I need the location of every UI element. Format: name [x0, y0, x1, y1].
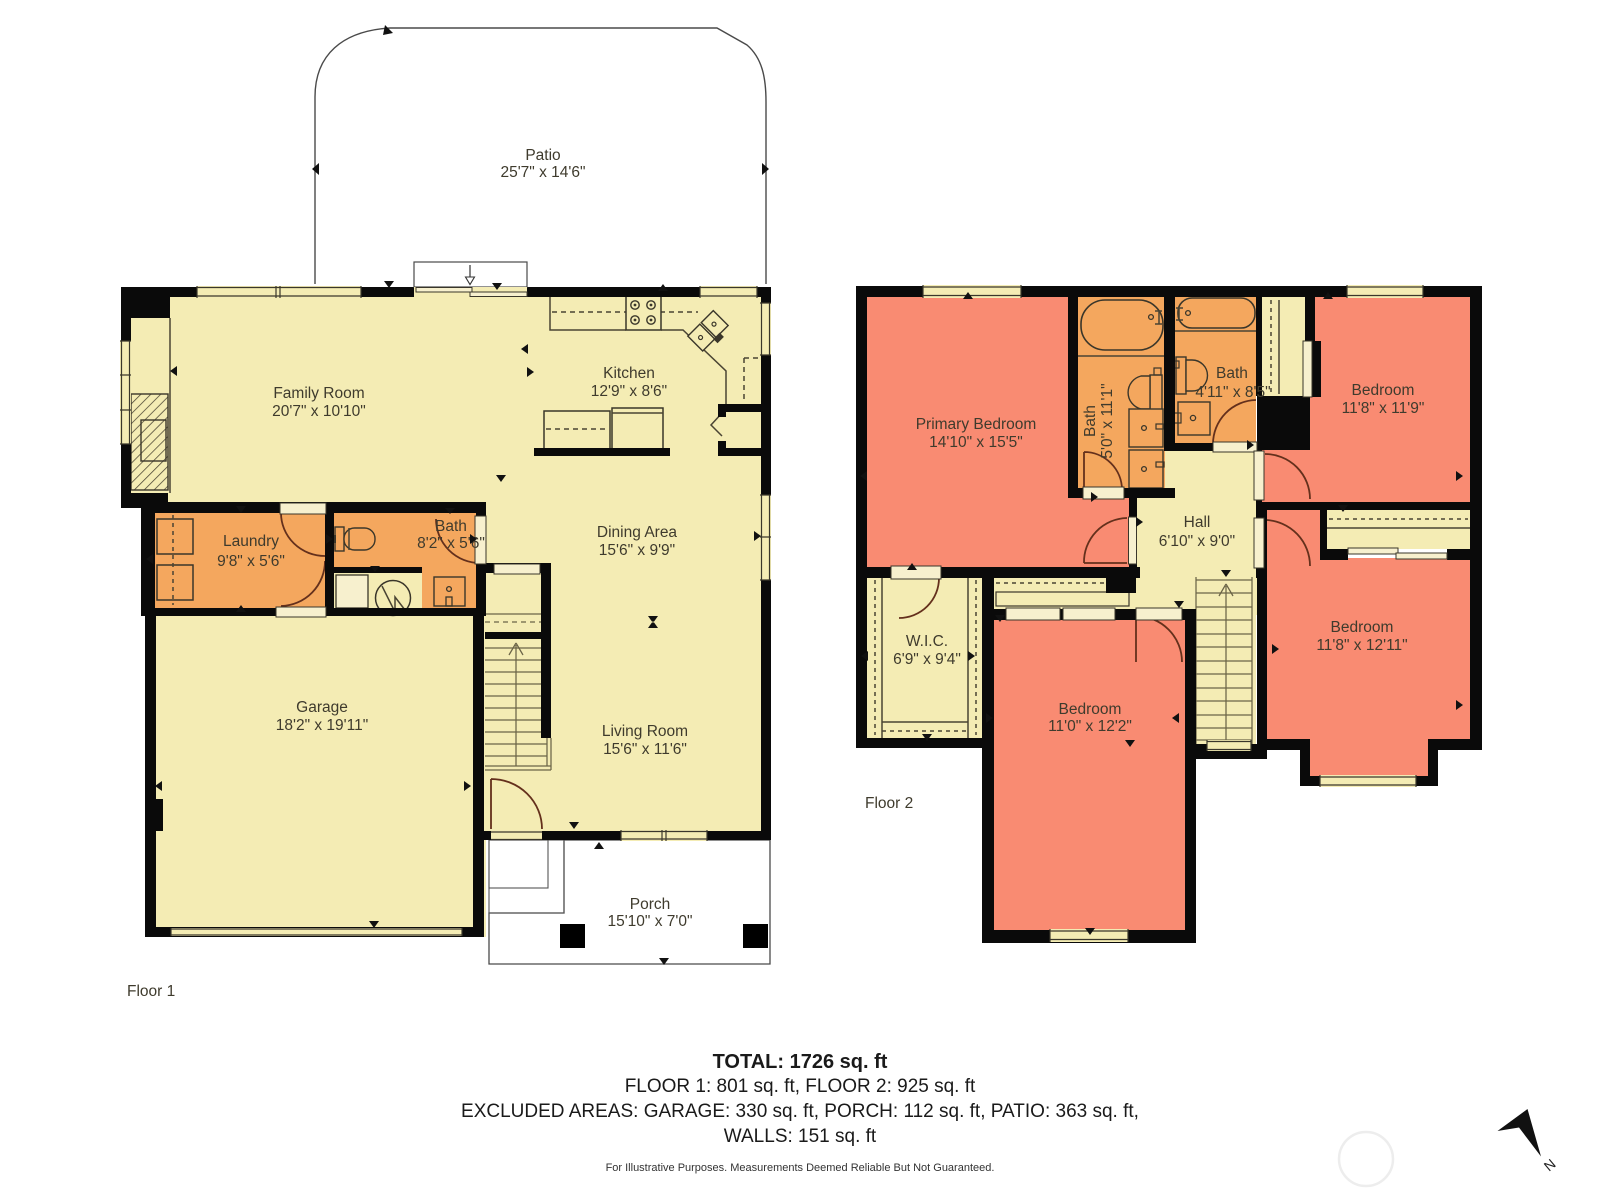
svg-text:15'6" x 9'9": 15'6" x 9'9": [599, 542, 675, 559]
svg-text:6'10" x 9'0": 6'10" x 9'0": [1159, 533, 1235, 550]
svg-text:4'11" x 8'5": 4'11" x 8'5": [1195, 384, 1270, 401]
svg-text:Bath: Bath: [1082, 405, 1099, 437]
svg-text:For Illustrative Purposes. Mea: For Illustrative Purposes. Measurements …: [606, 1162, 995, 1174]
svg-text:Bath: Bath: [435, 518, 467, 535]
svg-text:Dining Area: Dining Area: [597, 524, 678, 541]
svg-text:6'9" x 9'4": 6'9" x 9'4": [893, 651, 961, 668]
svg-text:Living Room: Living Room: [602, 723, 688, 740]
svg-text:11'0" x 12'2": 11'0" x 12'2": [1048, 718, 1132, 735]
svg-text:15'10" x 7'0": 15'10" x 7'0": [607, 913, 692, 930]
svg-text:Porch: Porch: [630, 896, 671, 913]
svg-text:Primary Bedroom: Primary Bedroom: [916, 416, 1037, 433]
svg-text:Bath: Bath: [1216, 365, 1248, 382]
svg-text:Floor 2: Floor 2: [865, 795, 913, 812]
svg-text:Family Room: Family Room: [273, 385, 364, 402]
svg-text:Floor 1: Floor 1: [127, 983, 175, 1000]
svg-text:Garage: Garage: [296, 699, 348, 716]
svg-text:25'7" x 14'6": 25'7" x 14'6": [500, 164, 585, 181]
svg-text:Kitchen: Kitchen: [603, 365, 655, 382]
svg-text:11'8" x 11'9": 11'8" x 11'9": [1342, 400, 1425, 417]
svg-text:15'6" x 11'6": 15'6" x 11'6": [603, 741, 687, 758]
svg-text:20'7" x 10'10": 20'7" x 10'10": [272, 403, 366, 420]
svg-text:WALLS: 151 sq. ft: WALLS: 151 sq. ft: [724, 1126, 877, 1147]
svg-text:TOTAL: 1726 sq. ft: TOTAL: 1726 sq. ft: [713, 1051, 888, 1073]
svg-text:Bedroom: Bedroom: [1059, 701, 1122, 718]
svg-text:EXCLUDED AREAS: GARAGE: 330 sq: EXCLUDED AREAS: GARAGE: 330 sq. ft, PORC…: [461, 1101, 1139, 1122]
svg-text:14'10" x 15'5": 14'10" x 15'5": [929, 434, 1023, 451]
svg-text:Laundry: Laundry: [223, 533, 279, 550]
svg-text:11'8" x 12'11": 11'8" x 12'11": [1316, 637, 1407, 654]
svg-text:Hall: Hall: [1184, 514, 1211, 531]
svg-text:5'0" x 11'1": 5'0" x 11'1": [1099, 383, 1116, 458]
svg-text:Bedroom: Bedroom: [1331, 619, 1394, 636]
svg-text:FLOOR 1: 801 sq. ft, FLOOR 2:: FLOOR 1: 801 sq. ft, FLOOR 2: 925 sq. ft: [625, 1076, 976, 1097]
svg-text:W.I.C.: W.I.C.: [906, 633, 948, 650]
svg-text:12'9" x 8'6": 12'9" x 8'6": [591, 383, 667, 400]
svg-text:18'2" x 19'11": 18'2" x 19'11": [276, 717, 368, 734]
svg-text:9'8" x 5'6": 9'8" x 5'6": [217, 553, 285, 570]
svg-text:Patio: Patio: [525, 147, 560, 164]
svg-text:Bedroom: Bedroom: [1352, 382, 1415, 399]
